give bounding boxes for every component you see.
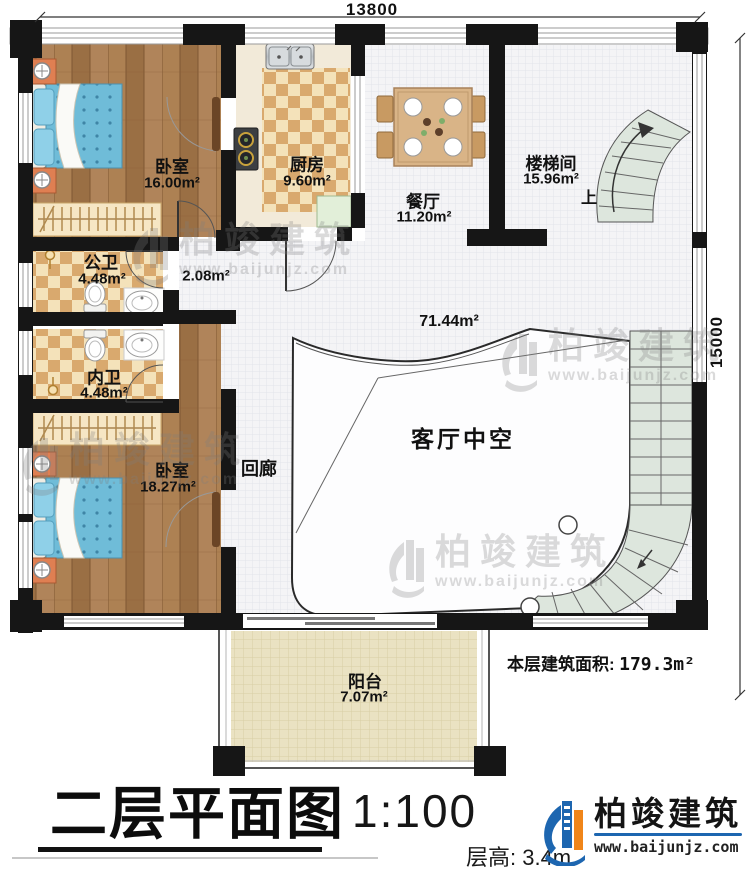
toilet-icon (84, 282, 106, 312)
kitchen-sink-icon (266, 44, 314, 69)
floor-plan-drawing (0, 0, 750, 872)
balcony-floor (219, 629, 489, 768)
dimension-line-right (735, 33, 745, 700)
void-outline (292, 329, 630, 616)
kitchen-cabinet-icon (317, 196, 351, 227)
sliding-door (243, 614, 437, 628)
floor-plan-page: 13800 15000 卧室 16.00m² 厨房 9.60m² 餐厅 11.2… (0, 0, 750, 872)
window (352, 76, 364, 193)
wardrobe-icon (33, 412, 161, 445)
title-underline-light (12, 857, 378, 859)
wardrobe-icon (33, 203, 161, 236)
brand-logo: 柏竣建筑 www.baijunjz.com (533, 796, 742, 866)
brand-url: www.baijunjz.com (594, 838, 742, 856)
floor-area-label: 本层建筑面积: (507, 655, 615, 674)
window (693, 54, 706, 382)
brand-swoosh (594, 833, 742, 836)
toilet-icon (84, 330, 106, 361)
bed-icon (30, 478, 122, 558)
stove-icon (234, 128, 258, 170)
page-title: 二层平面图 (50, 768, 345, 850)
dimension-line-top (35, 12, 705, 22)
brand-name: 柏竣建筑 (594, 796, 742, 832)
title-underline (38, 847, 322, 852)
floor-area-note: 本层建筑面积: 179.3m² (507, 650, 695, 675)
floor-area-value: 179.3m² (619, 654, 695, 675)
brand-logo-icon (533, 796, 589, 866)
drawing-scale: 1:100 (352, 784, 477, 838)
sink-icon (124, 330, 164, 360)
bed-icon (30, 84, 122, 168)
